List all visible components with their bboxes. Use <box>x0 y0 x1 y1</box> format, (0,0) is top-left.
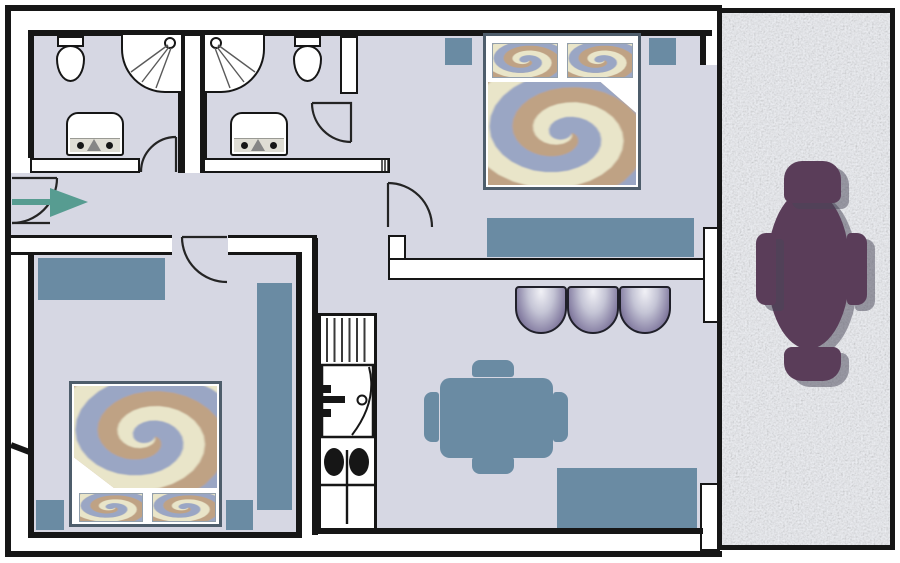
bathroom1-wall-bottom <box>30 158 140 173</box>
washbasin1 <box>66 112 124 156</box>
bathroom1-wall-left <box>28 36 34 158</box>
shower2-head-icon <box>210 37 222 49</box>
dining-chair-left <box>424 392 439 442</box>
bedroom-top-wall-corner <box>700 30 706 65</box>
bedroom-top-duvet <box>488 82 636 185</box>
balcony-chair-left <box>756 233 776 305</box>
bathroom2-wall-right <box>340 36 358 94</box>
bedroom-bottom-border-left <box>28 255 34 538</box>
bedroom-bottom-wardrobe <box>257 283 292 510</box>
bedroom-bottom-wall-inner-a <box>11 252 172 255</box>
washbasin2-tap-right <box>270 142 277 149</box>
dining-table <box>440 378 553 458</box>
washbasin2-faucet-icon <box>251 139 265 151</box>
kitchen-counter-hatch <box>326 318 369 362</box>
washbasin1-tap-left <box>77 142 84 149</box>
bedroom-top-wall-south <box>388 258 706 280</box>
washbasin2 <box>230 112 288 156</box>
hallway-wall-north <box>203 158 390 173</box>
bedroom-top-nightstand-right <box>649 38 676 65</box>
washbasin1-faucet-icon <box>87 139 101 151</box>
dining-chair-top <box>472 360 514 377</box>
floor-plan <box>0 0 900 563</box>
balcony-oval-table <box>767 189 850 349</box>
bedroom-bottom-border-right <box>296 255 302 538</box>
bedroom-top-nightstand-left <box>445 38 472 65</box>
shower1-head-icon <box>164 37 176 49</box>
bedroom-bottom-nightstand-right <box>226 500 253 530</box>
bedroom-top-pillow-left <box>492 43 558 78</box>
bedroom-bottom-pillow-right <box>152 493 216 522</box>
bedroom-bottom-border-bottom <box>28 532 302 538</box>
dining-chair-bottom <box>472 457 514 474</box>
exterior-wall-top <box>5 5 722 11</box>
washbasin1-tap-right <box>106 142 113 149</box>
exterior-wall-bottom <box>5 551 722 557</box>
wall-gap-between-bathrooms <box>185 30 200 173</box>
bedroom-top-pillow-right <box>567 43 633 78</box>
balcony-chair-top <box>784 161 841 203</box>
washbasin2-tap-left <box>241 142 248 149</box>
bedroom-top-bed <box>483 33 641 190</box>
bedroom-bottom-dresser <box>38 258 165 300</box>
exterior-wall-left <box>5 5 11 557</box>
balcony <box>717 8 895 550</box>
balcony-boundary-line <box>717 8 721 550</box>
bedroom-bottom-duvet <box>74 386 217 488</box>
dining-chair-right <box>553 392 568 442</box>
bedroom-bottom-nightstand-left <box>36 500 64 530</box>
kitchen-unit <box>318 313 377 531</box>
bedroom-bottom-wall-cavity-right <box>302 238 312 535</box>
living-bench <box>557 468 697 528</box>
bedroom-bottom-wall-cavity-a <box>11 238 172 252</box>
balcony-chair-bottom <box>784 347 841 381</box>
bedroom-top-sideboard <box>487 218 694 257</box>
balcony-chair-right <box>847 233 867 305</box>
bedroom-bottom-bed <box>69 381 222 527</box>
bedroom-bottom-pillow-left <box>79 493 143 522</box>
hallway-floor-strip <box>11 173 30 235</box>
